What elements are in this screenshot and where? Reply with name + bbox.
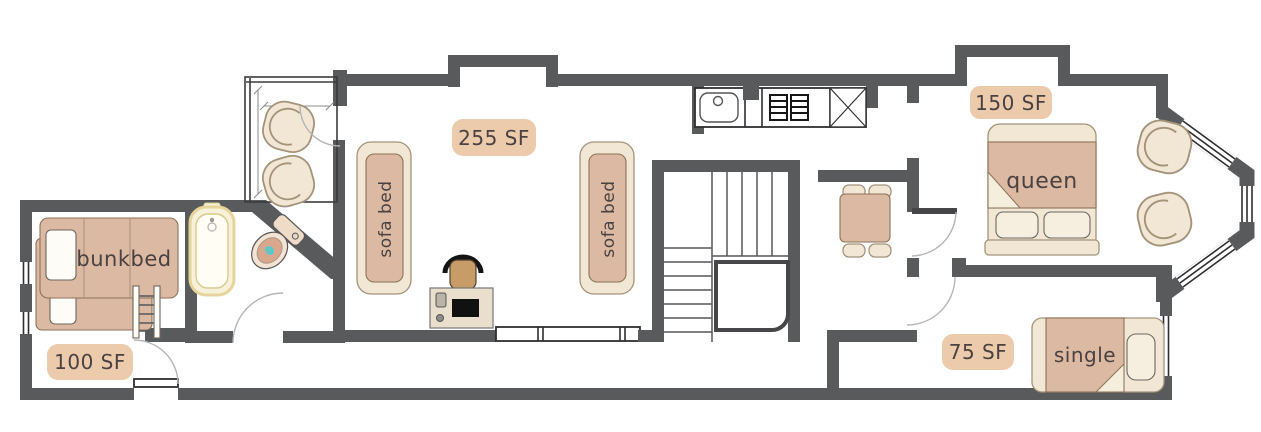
sofa-bed-left-label: sofa bed: [376, 180, 396, 257]
bathroom-door-arc: [233, 293, 283, 343]
bunk-upper-pillow: [46, 230, 76, 280]
bathtub: [190, 203, 234, 295]
sofa-bed-right: sofa bed: [580, 142, 634, 294]
bunk-room-area-label: 100 SF: [54, 350, 126, 374]
dining-chair: [843, 244, 865, 257]
kitchen-sink: [700, 93, 738, 122]
queen-pillow-2: [1044, 212, 1090, 238]
area-badge-living: 255 SF: [452, 119, 536, 156]
entry-door-arc: [134, 340, 178, 384]
single-door-arc: [907, 277, 955, 325]
wall-bath-bottom-left: [185, 331, 233, 343]
wall-single-left: [827, 330, 839, 400]
armchair-queen-2: [1133, 188, 1195, 249]
entry-porch: [245, 77, 337, 211]
floor-plan-canvas: bunkbed 100 SF sofa bed sofa bed: [0, 0, 1261, 432]
office-chair: [445, 257, 481, 289]
sofa-bed-left: sofa bed: [357, 142, 411, 294]
single-area-label: 75 SF: [949, 340, 1008, 364]
outer-wall-bottom: [178, 388, 1172, 400]
wall-bump-top: [448, 55, 558, 67]
wall-stairs-top: [652, 160, 800, 172]
single-label: single: [1054, 343, 1116, 367]
window-left-2: [20, 312, 32, 334]
staircase: [664, 172, 788, 342]
kitchen-counter: [695, 86, 866, 127]
sofa-bed-right-label: sofa bed: [599, 180, 619, 257]
wall-stairs-left: [652, 160, 664, 342]
desk-mouse: [437, 315, 444, 322]
stair-void: [716, 262, 788, 330]
area-badge-queen: 150 SF: [970, 86, 1052, 119]
wall-dining-top: [818, 170, 919, 182]
kitchen-wall-notch: [743, 86, 759, 100]
cabinet-x-icon: [830, 88, 866, 127]
queen-door-arc: [912, 212, 956, 256]
floor-plan: bunkbed 100 SF sofa bed sofa bed: [0, 0, 1261, 432]
monitor: [452, 299, 479, 317]
wall-queen-bump-top: [955, 45, 1070, 57]
queen-area-label: 150 SF: [975, 91, 1047, 115]
outer-wall-bottom-left: [20, 388, 134, 400]
wall-living-top-left: [337, 74, 455, 86]
ladder-rail-left: [133, 286, 139, 338]
wall-queen-left-3: [907, 258, 919, 277]
wall-queen-left-2: [907, 158, 919, 212]
wall-queen-left-1: [907, 74, 919, 103]
bunk-bed: bunkbed: [36, 218, 178, 338]
queen-headboard: [985, 240, 1099, 255]
desk: [430, 288, 493, 328]
single-pillow: [1127, 334, 1155, 380]
queen-label: queen: [1006, 169, 1077, 194]
queen-bed: queen: [985, 124, 1099, 255]
desk-tablet: [436, 293, 446, 307]
toilet: [244, 213, 307, 277]
single-bed: single: [1032, 318, 1164, 392]
window-living-bottom: [496, 327, 640, 341]
wall-kitchen-right: [866, 86, 878, 108]
wall-top-middle: [555, 74, 960, 86]
window-left-1: [20, 262, 32, 284]
living-area-label: 255 SF: [458, 126, 530, 150]
area-badge-single: 75 SF: [942, 334, 1014, 370]
ladder-rail-right: [154, 286, 160, 338]
wall-single-top: [827, 330, 917, 342]
dining-chair: [869, 244, 891, 257]
area-badge-bunk-room: 100 SF: [47, 344, 133, 380]
queen-pillow-1: [996, 212, 1038, 238]
wall-top-right: [1058, 74, 1168, 86]
outer-wall-left: [20, 200, 32, 400]
dining-set: [840, 185, 891, 257]
bunkbed-label: bunkbed: [76, 247, 171, 271]
wall-living-left: [333, 140, 345, 342]
entry-door-leaf: [134, 379, 178, 387]
wall-queen-bottom: [952, 265, 1172, 277]
wall-living-bottom: [333, 330, 496, 342]
dining-table: [840, 194, 890, 242]
queen-door-leaf: [912, 208, 957, 214]
